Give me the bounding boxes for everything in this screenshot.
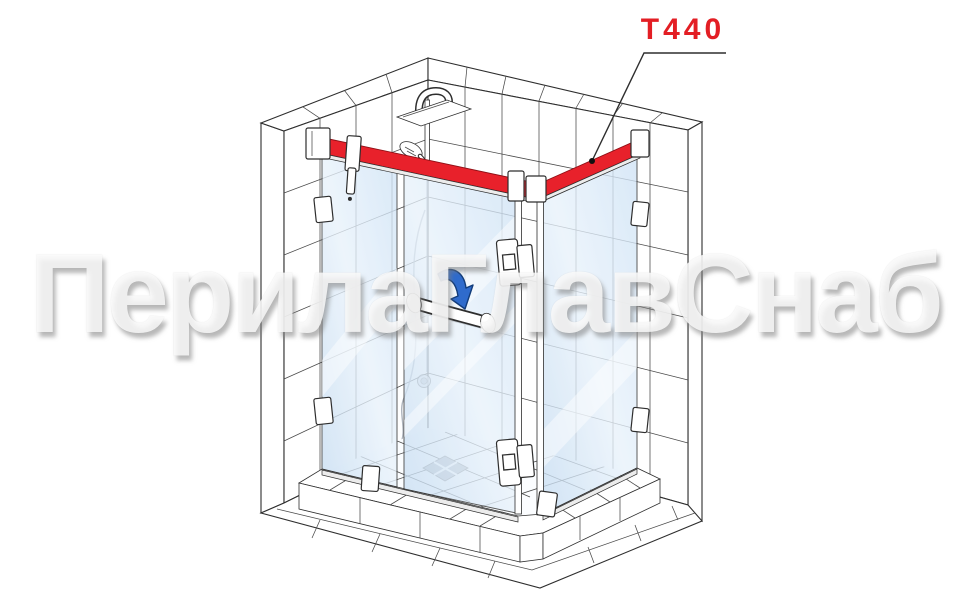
bottom-clamp-left (361, 465, 380, 491)
bar-corner-bracket (508, 171, 546, 202)
shower-enclosure-drawing (0, 0, 970, 606)
part-label-t440: T440 (623, 13, 743, 47)
bar-wall-bracket-left (306, 128, 330, 159)
bar-wall-bracket-right (631, 130, 649, 157)
wall-bracket-left-top (314, 196, 334, 223)
bottom-clamp-corner (536, 491, 557, 517)
fixed-panel-right (543, 159, 637, 514)
wall-bracket-left-bottom (314, 397, 334, 425)
figure: T440 ПерилаГлавСнаб (0, 0, 970, 606)
corner-post-right-profile (537, 197, 544, 515)
wall-bracket-right-top (631, 201, 649, 227)
wall-bracket-right-bottom (631, 407, 649, 433)
